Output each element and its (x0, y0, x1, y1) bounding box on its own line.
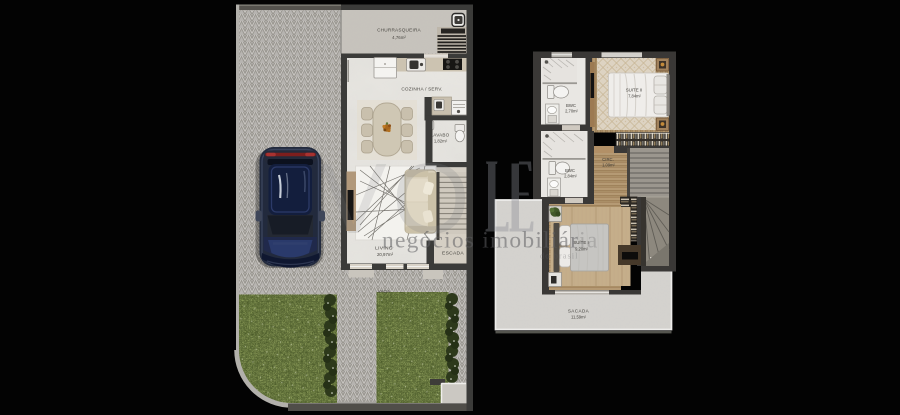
svg-text:SUITE II: SUITE II (626, 88, 643, 93)
svg-text:2,84m²: 2,84m² (564, 174, 577, 179)
svg-text:4,76m²: 4,76m² (392, 35, 406, 40)
svg-text:1,09m²: 1,09m² (602, 163, 615, 168)
svg-text:do brasil: do brasil (540, 251, 579, 261)
svg-text:COZINHA / SERV.: COZINHA / SERV. (401, 87, 442, 92)
svg-text:11,59m²: 11,59m² (571, 315, 587, 320)
svg-text:SACADA: SACADA (568, 309, 590, 314)
svg-text:CHURRASQUEIRA: CHURRASQUEIRA (377, 28, 421, 33)
svg-text:VAGA: VAGA (378, 289, 390, 294)
svg-text:BWC: BWC (565, 168, 575, 173)
svg-text:BWC: BWC (566, 103, 576, 108)
svg-text:LAVABO: LAVABO (431, 133, 450, 138)
svg-text:7,84m²: 7,84m² (628, 94, 641, 99)
svg-text:CIRC.: CIRC. (602, 157, 614, 162)
svg-text:V: V (320, 143, 387, 255)
svg-text:2,70m²: 2,70m² (565, 109, 578, 114)
